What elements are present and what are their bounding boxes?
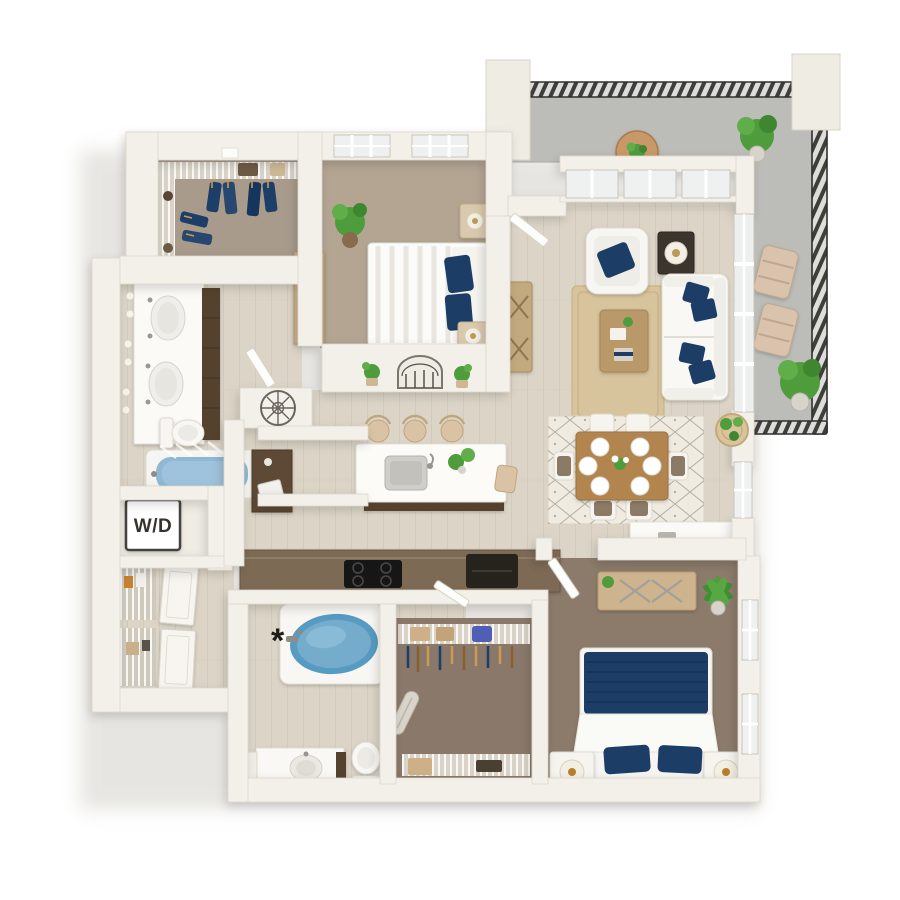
tub2-faucet [286,636,298,642]
kitchen-counter [240,550,560,592]
armchair [586,228,648,294]
toilet-1 [160,418,204,448]
wall-bedroom2-north-a [536,538,552,560]
wall-bath2-closet2-divider [380,604,396,784]
bed1-pillow [444,254,475,293]
wall-east-upper [736,156,754,216]
place-setting [591,438,609,456]
bed2-pillow [657,745,702,774]
wall-west [92,258,120,712]
wall-east-bedroom2 [738,556,760,802]
oval-tub [280,604,384,684]
balcony-pillar-right [792,54,840,130]
wall-west-upper [126,132,158,262]
dining-table [576,432,668,500]
place-setting [631,477,649,495]
wall-closet1-divider [298,132,322,346]
kitchen-island [356,444,506,511]
wall-hall-west [224,420,244,566]
wall-bedroom1-east [486,216,510,392]
bedroom2-window-1 [742,600,758,660]
bedroom2-bed [574,648,718,788]
closet2-blue-bin [472,626,492,642]
wall-closet2-east [532,600,548,784]
bed2-pillow [603,744,651,774]
wall-entry [508,196,566,216]
coffee-table [600,310,648,372]
tub1-faucet [151,471,157,477]
place-setting [591,477,609,495]
place-setting [631,438,649,456]
bedroom2-window-2 [742,694,758,754]
wall-laundry-bottom [120,556,232,568]
bedroom2-dresser [598,572,696,610]
balcony-railing-top [500,82,822,97]
laundry-closet: W/D [126,500,180,550]
round-wall-medallion [261,391,295,425]
console-arch-mirror [398,356,442,388]
dresser-plant [602,576,614,588]
sofa [662,274,728,400]
bedroom1-window-2 [412,135,468,157]
shoes [163,243,173,253]
double-vanity [134,282,220,444]
bedroom1-window-1 [334,135,390,157]
dining-wall-plant-basket [716,414,748,446]
washer-dryer-label: W/D [134,516,172,537]
shoes [163,191,173,201]
floor-plan-render: W/D * [0,0,900,900]
floor-plan-svg: W/D * [0,0,900,900]
sliding-glass-door [734,214,754,412]
wall-bath2-west [228,604,248,802]
place-setting [579,457,597,475]
wall-bath1-north [120,256,310,284]
wall-bath2-north [228,590,548,604]
wall-tubroom-bottom [258,494,368,506]
wall-tubroom-top [258,426,368,440]
living-windows [566,170,730,198]
cooktop [344,560,402,588]
side-table-lamp [658,232,694,274]
table-plant [623,317,633,327]
wall-south [228,778,760,802]
closet1-ceiling-light [222,148,238,158]
balcony-railing-bottom [746,421,827,434]
place-setting [643,457,661,475]
tub-note-asterisk: * [271,622,285,660]
dining-window [734,462,752,518]
wall-bedroom2-north-b [598,538,746,560]
island-end-chair [494,465,517,494]
nightstand-top [460,204,490,238]
